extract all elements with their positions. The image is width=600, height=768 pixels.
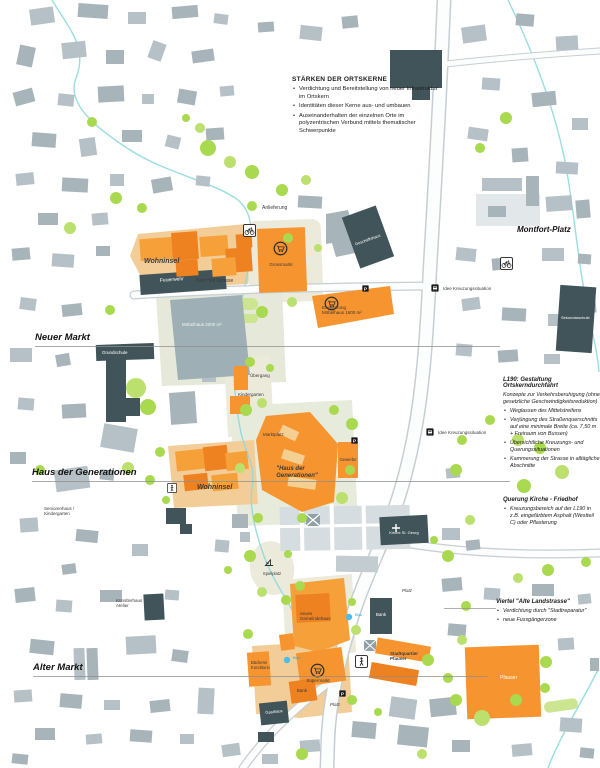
note-bullet: Identitäten dieser Kerne aus- und umbaue…	[299, 103, 444, 111]
annotation-viertel-title: Viertel "Alte Landstrasse"	[496, 599, 593, 605]
annotation-l190-intro: Konzepte zur Verkehrsberuhigung (ohne ge…	[503, 392, 600, 406]
note-bullet: Auseinanderhalten der einzelnen Orte im …	[299, 113, 444, 136]
annotation-staerken-title: STÄRKEN DER ORTSKERNE	[292, 76, 444, 83]
masterplan-map: P	[0, 0, 600, 768]
note-bullet: Übersichtliche Kreuzungs- und Querungssi…	[510, 440, 600, 454]
annotation-staerken: STÄRKEN DER ORTSKERNE Verdichtung und Be…	[292, 76, 444, 137]
annotation-l190-title: L190: Gestaltung Ortskerndurchfahrt	[503, 377, 600, 389]
note-bullet: Kammerung der Strasse in alltägliche Abs…	[510, 456, 600, 470]
note-bullet: Kreuzungsbereich auf der L190 in z.B. ei…	[510, 506, 600, 527]
annotation-viertel: Viertel "Alte Landstrasse" Verdichtung d…	[496, 599, 593, 626]
viertel-leader-line	[444, 608, 496, 609]
note-bullet: Verdichtung und Bereitstellung von neuer…	[299, 86, 444, 101]
annotation-querung: Querung Kirche - Friedhof Kreuzungsberei…	[503, 497, 600, 529]
note-bullet: Weglassen des Mittelstreifens	[510, 408, 600, 415]
note-bullet: Verjüngung des Straßenquerschnitts auf e…	[510, 417, 600, 438]
annotation-querung-bullets: Kreuzungsbereich auf der L190 in z.B. ei…	[503, 506, 600, 527]
annotation-l190-bullets: Weglassen des MittelstreifensVerjüngung …	[503, 408, 600, 470]
note-bullet: neue Fussgängerzone	[503, 617, 593, 624]
note-bullet: Verdichtung durch "Stadtreparatur"	[503, 608, 593, 615]
annotation-staerken-bullets: Verdichtung und Bereitstellung von neuer…	[292, 86, 444, 135]
annotation-querung-title: Querung Kirche - Friedhof	[503, 497, 600, 503]
annotation-l190: L190: Gestaltung Ortskerndurchfahrt Konz…	[503, 377, 600, 472]
annotation-viertel-bullets: Verdichtung durch "Stadtreparatur"neue F…	[496, 608, 593, 624]
